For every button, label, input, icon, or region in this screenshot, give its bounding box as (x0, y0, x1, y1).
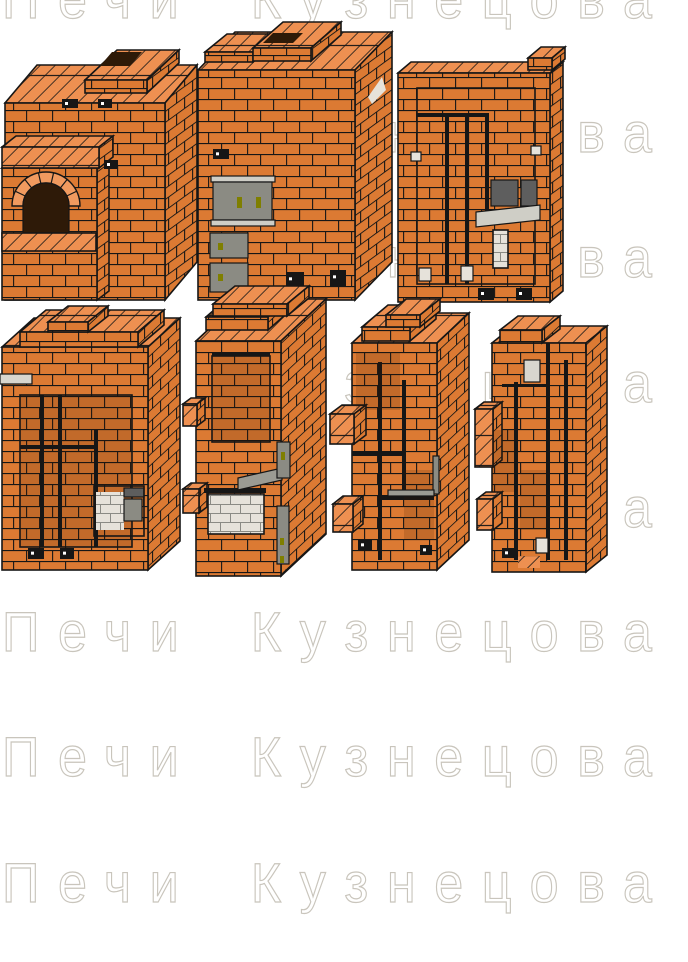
stove-figure-3 (398, 47, 565, 302)
stove-figures-canvas (0, 0, 688, 962)
stove-figure-1 (2, 50, 197, 300)
stove-figure-7 (475, 316, 607, 572)
stove-figure-4 (0, 306, 180, 570)
stove-figure-2 (198, 22, 392, 300)
stove-figure-5 (183, 286, 326, 576)
stove-figure-6 (330, 299, 469, 570)
